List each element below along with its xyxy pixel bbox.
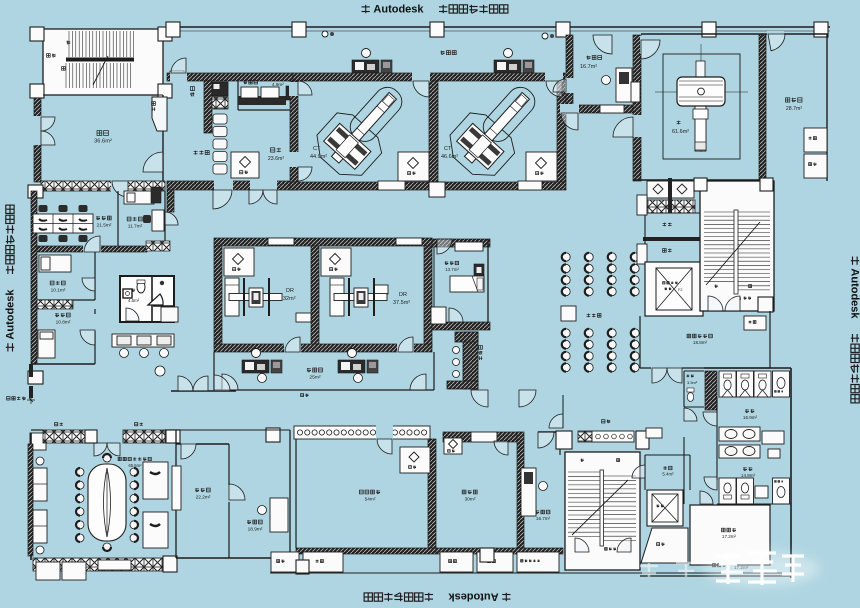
svg-text:F2: F2	[678, 288, 682, 292]
svg-text:61.6m²: 61.6m²	[672, 129, 689, 135]
svg-text:30m²: 30m²	[465, 497, 476, 503]
svg-text:3.5m²: 3.5m²	[687, 380, 698, 385]
svg-text:16.9m²: 16.9m²	[743, 415, 758, 420]
svg-text:36.6m²: 36.6m²	[94, 139, 112, 145]
svg-text:18.8m²: 18.8m²	[693, 340, 708, 345]
svg-text:5.4m²: 5.4m²	[662, 472, 674, 477]
svg-text:16.7m²: 16.7m²	[536, 516, 551, 521]
svg-text:32m²: 32m²	[283, 296, 296, 302]
svg-text:54m²: 54m²	[365, 497, 376, 503]
svg-text:DR: DR	[286, 288, 294, 294]
svg-text:Autodesk: Autodesk	[448, 591, 499, 603]
svg-text:17.2m²: 17.2m²	[722, 534, 737, 539]
svg-text:10.8m²: 10.8m²	[56, 320, 71, 326]
svg-text:DR: DR	[399, 292, 407, 298]
svg-text:37.5m²: 37.5m²	[393, 300, 410, 306]
svg-text:4.9m²: 4.9m²	[272, 82, 284, 87]
svg-text:4.5m²: 4.5m²	[128, 298, 140, 303]
svg-text:CT: CT	[444, 146, 452, 152]
svg-text:65.5m²: 65.5m²	[129, 463, 143, 468]
svg-text:22.2m²: 22.2m²	[196, 495, 211, 501]
svg-text:Autodesk: Autodesk	[5, 289, 17, 340]
svg-text:25m²: 25m²	[309, 374, 321, 380]
svg-text:Autodesk: Autodesk	[373, 4, 424, 16]
svg-text:Autodesk: Autodesk	[849, 268, 860, 319]
svg-text:11.7m²: 11.7m²	[128, 224, 143, 230]
svg-text:13.7m²: 13.7m²	[445, 267, 459, 272]
svg-text:14.8m²: 14.8m²	[741, 473, 756, 478]
svg-text:28.7m²: 28.7m²	[786, 106, 803, 112]
svg-text:CT: CT	[313, 146, 321, 152]
svg-text:44.9m²: 44.9m²	[310, 154, 327, 160]
svg-text:18.9m²: 18.9m²	[248, 527, 263, 533]
svg-text:46.6m²: 46.6m²	[441, 154, 458, 160]
svg-text:21.5m²: 21.5m²	[97, 223, 112, 229]
svg-text:10.1m²: 10.1m²	[51, 288, 66, 294]
svg-text:23.6m²: 23.6m²	[268, 156, 285, 162]
svg-text:16.7m²: 16.7m²	[580, 64, 597, 70]
